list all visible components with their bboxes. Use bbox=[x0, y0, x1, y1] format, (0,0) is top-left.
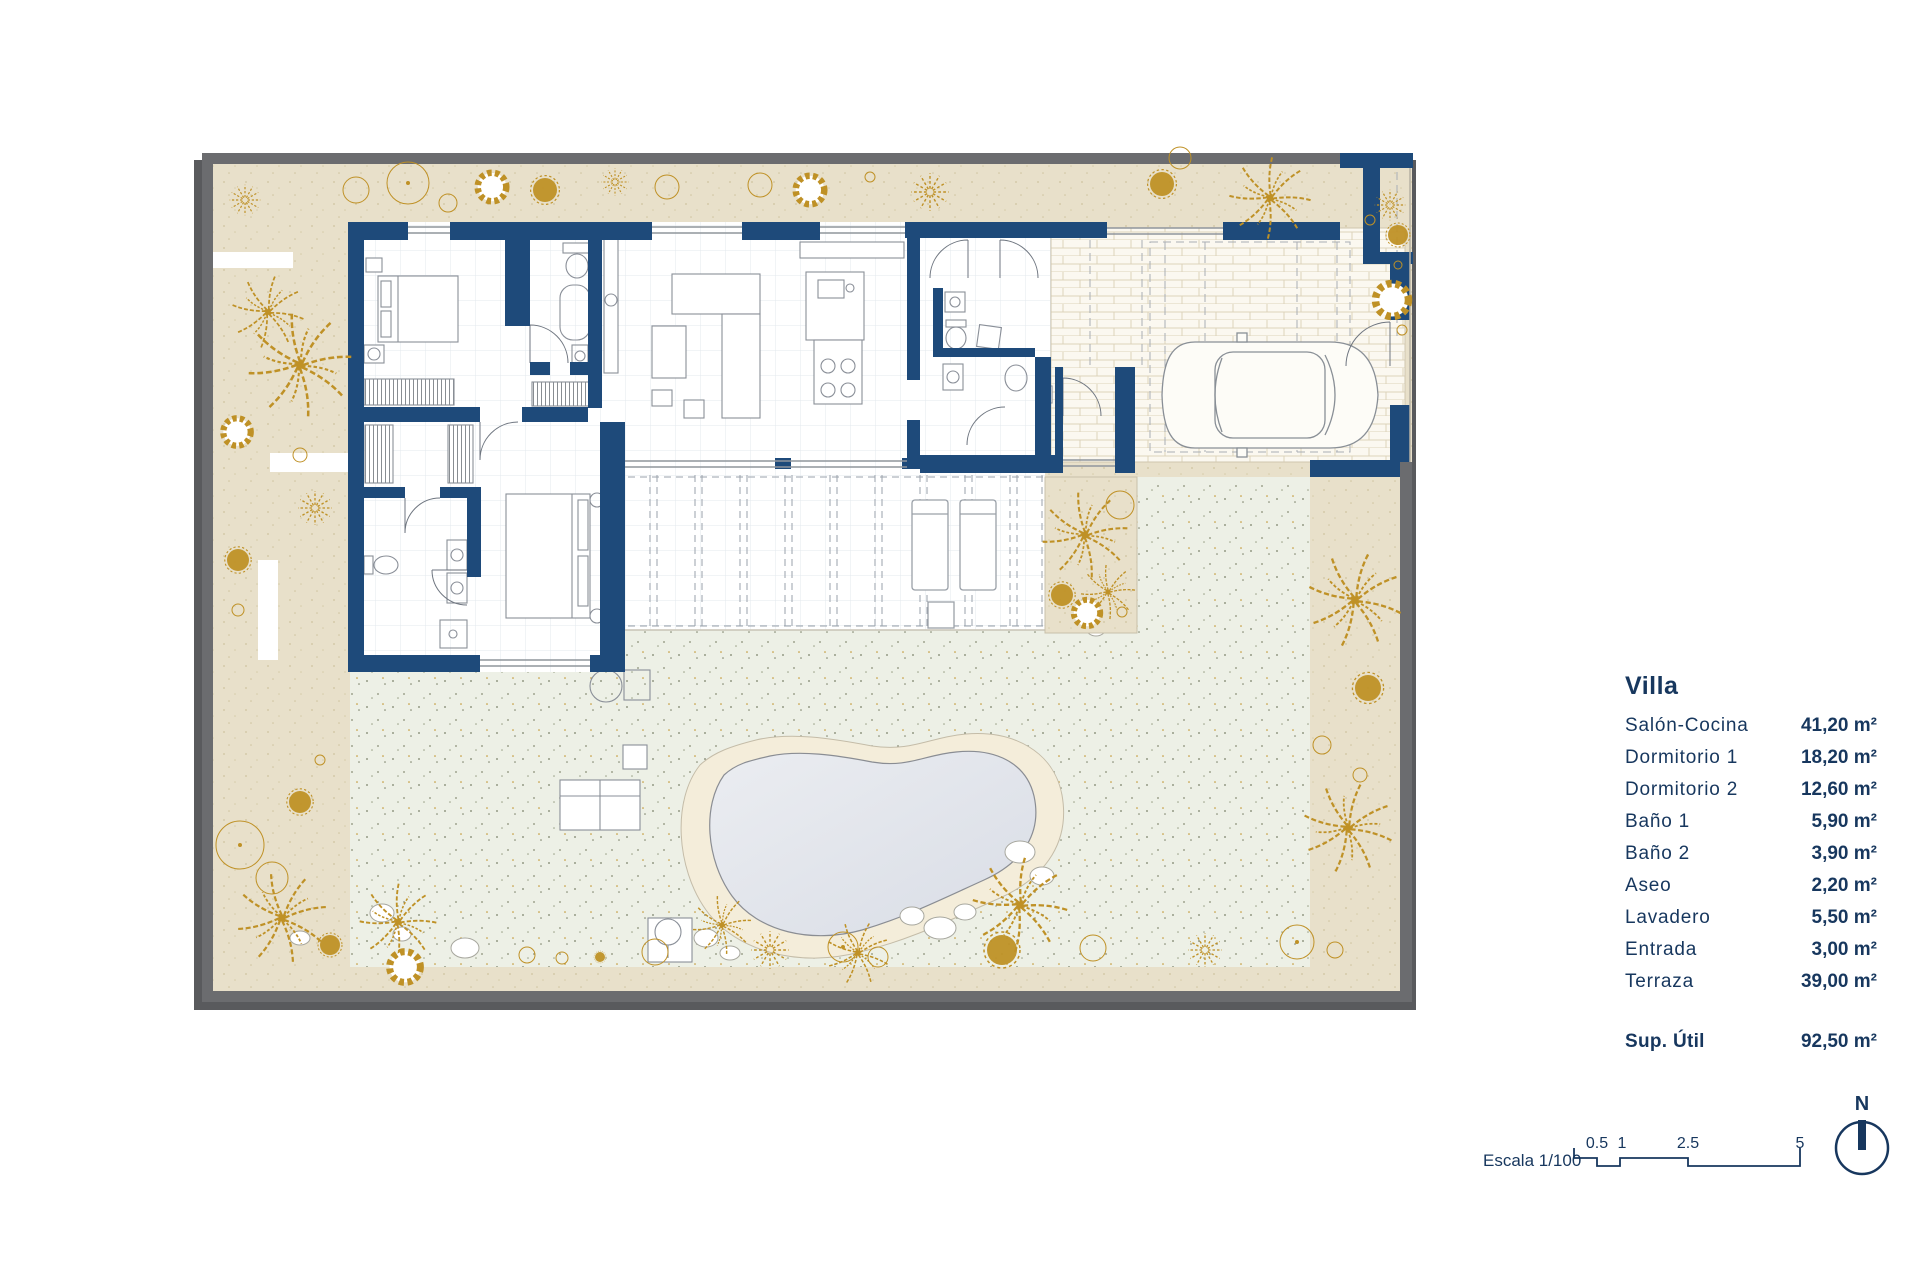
tv-cabinet bbox=[604, 237, 618, 373]
room-area: 5,50 m² bbox=[1812, 907, 1877, 929]
legend-row-bano-1: Baño 1 5,90 m² bbox=[1625, 811, 1877, 843]
wardrobe bbox=[364, 379, 454, 405]
terrace bbox=[625, 459, 1045, 630]
car bbox=[1162, 333, 1378, 457]
floor-plan-drawing: Escala 1/100 0.5 1 2.5 5 N bbox=[0, 0, 1920, 1280]
legend-row-terraza: Terraza 39,00 m² bbox=[1625, 971, 1877, 1003]
legend-row-dormitorio-2: Dormitorio 2 12,60 m² bbox=[1625, 779, 1877, 811]
room-label: Dormitorio 2 bbox=[1625, 779, 1738, 801]
scale-bar: Escala 1/100 0.5 1 2.5 5 bbox=[1483, 1135, 1805, 1170]
legend-row-salon-cocina: Salón-Cocina 41,20 m² bbox=[1625, 715, 1877, 747]
north-label: N bbox=[1855, 1093, 1869, 1115]
room-area: 41,20 m² bbox=[1801, 715, 1877, 737]
outdoor-shower-pad bbox=[648, 918, 692, 962]
room-label: Baño 2 bbox=[1625, 843, 1690, 865]
legend-panel: Villa Salón-Cocina 41,20 m² Dormitorio 1… bbox=[1625, 672, 1877, 1063]
legend-total-row: Sup. Útil 92,50 m² bbox=[1625, 1031, 1877, 1063]
kitchen-island bbox=[806, 272, 864, 340]
scale-label: Escala 1/100 bbox=[1483, 1151, 1581, 1170]
room-label: Dormitorio 1 bbox=[1625, 747, 1738, 769]
scale-tick-3: 5 bbox=[1796, 1135, 1805, 1152]
room-area: 12,60 m² bbox=[1801, 779, 1877, 801]
legend-row-entrada: Entrada 3,00 m² bbox=[1625, 939, 1877, 971]
room-label: Lavadero bbox=[1625, 907, 1711, 929]
scale-tick-0: 0.5 bbox=[1586, 1135, 1608, 1152]
room-label: Aseo bbox=[1625, 875, 1672, 897]
legend-row-aseo: Aseo 2,20 m² bbox=[1625, 875, 1877, 907]
scale-tick-1: 1 bbox=[1618, 1135, 1627, 1152]
room-area: 2,20 m² bbox=[1812, 875, 1877, 897]
floor-plan-page: Escala 1/100 0.5 1 2.5 5 N Villa Salón-C… bbox=[0, 0, 1920, 1280]
scale-tick-2: 2.5 bbox=[1677, 1135, 1699, 1152]
room-area: 18,20 m² bbox=[1801, 747, 1877, 769]
legend-row-lavadero: Lavadero 5,50 m² bbox=[1625, 907, 1877, 939]
compass-needle bbox=[1858, 1120, 1866, 1150]
legend-title: Villa bbox=[1625, 672, 1877, 701]
room-label: Salón-Cocina bbox=[1625, 715, 1749, 737]
room-area: 3,00 m² bbox=[1812, 939, 1877, 961]
legend-row-dormitorio-1: Dormitorio 1 18,20 m² bbox=[1625, 747, 1877, 779]
north-indicator: N bbox=[1836, 1093, 1888, 1174]
total-label: Sup. Útil bbox=[1625, 1031, 1705, 1053]
washing-machine bbox=[943, 364, 963, 390]
room-label: Baño 1 bbox=[1625, 811, 1690, 833]
room-area: 39,00 m² bbox=[1801, 971, 1877, 993]
sofa bbox=[672, 274, 760, 314]
room-label: Entrada bbox=[1625, 939, 1697, 961]
room-area: 5,90 m² bbox=[1812, 811, 1877, 833]
legend-row-bano-2: Baño 2 3,90 m² bbox=[1625, 843, 1877, 875]
bed-dormitorio-2 bbox=[506, 494, 590, 618]
total-area: 92,50 m² bbox=[1801, 1031, 1877, 1053]
room-area: 3,90 m² bbox=[1812, 843, 1877, 865]
coffee-table bbox=[652, 326, 686, 378]
room-label: Terraza bbox=[1625, 971, 1694, 993]
